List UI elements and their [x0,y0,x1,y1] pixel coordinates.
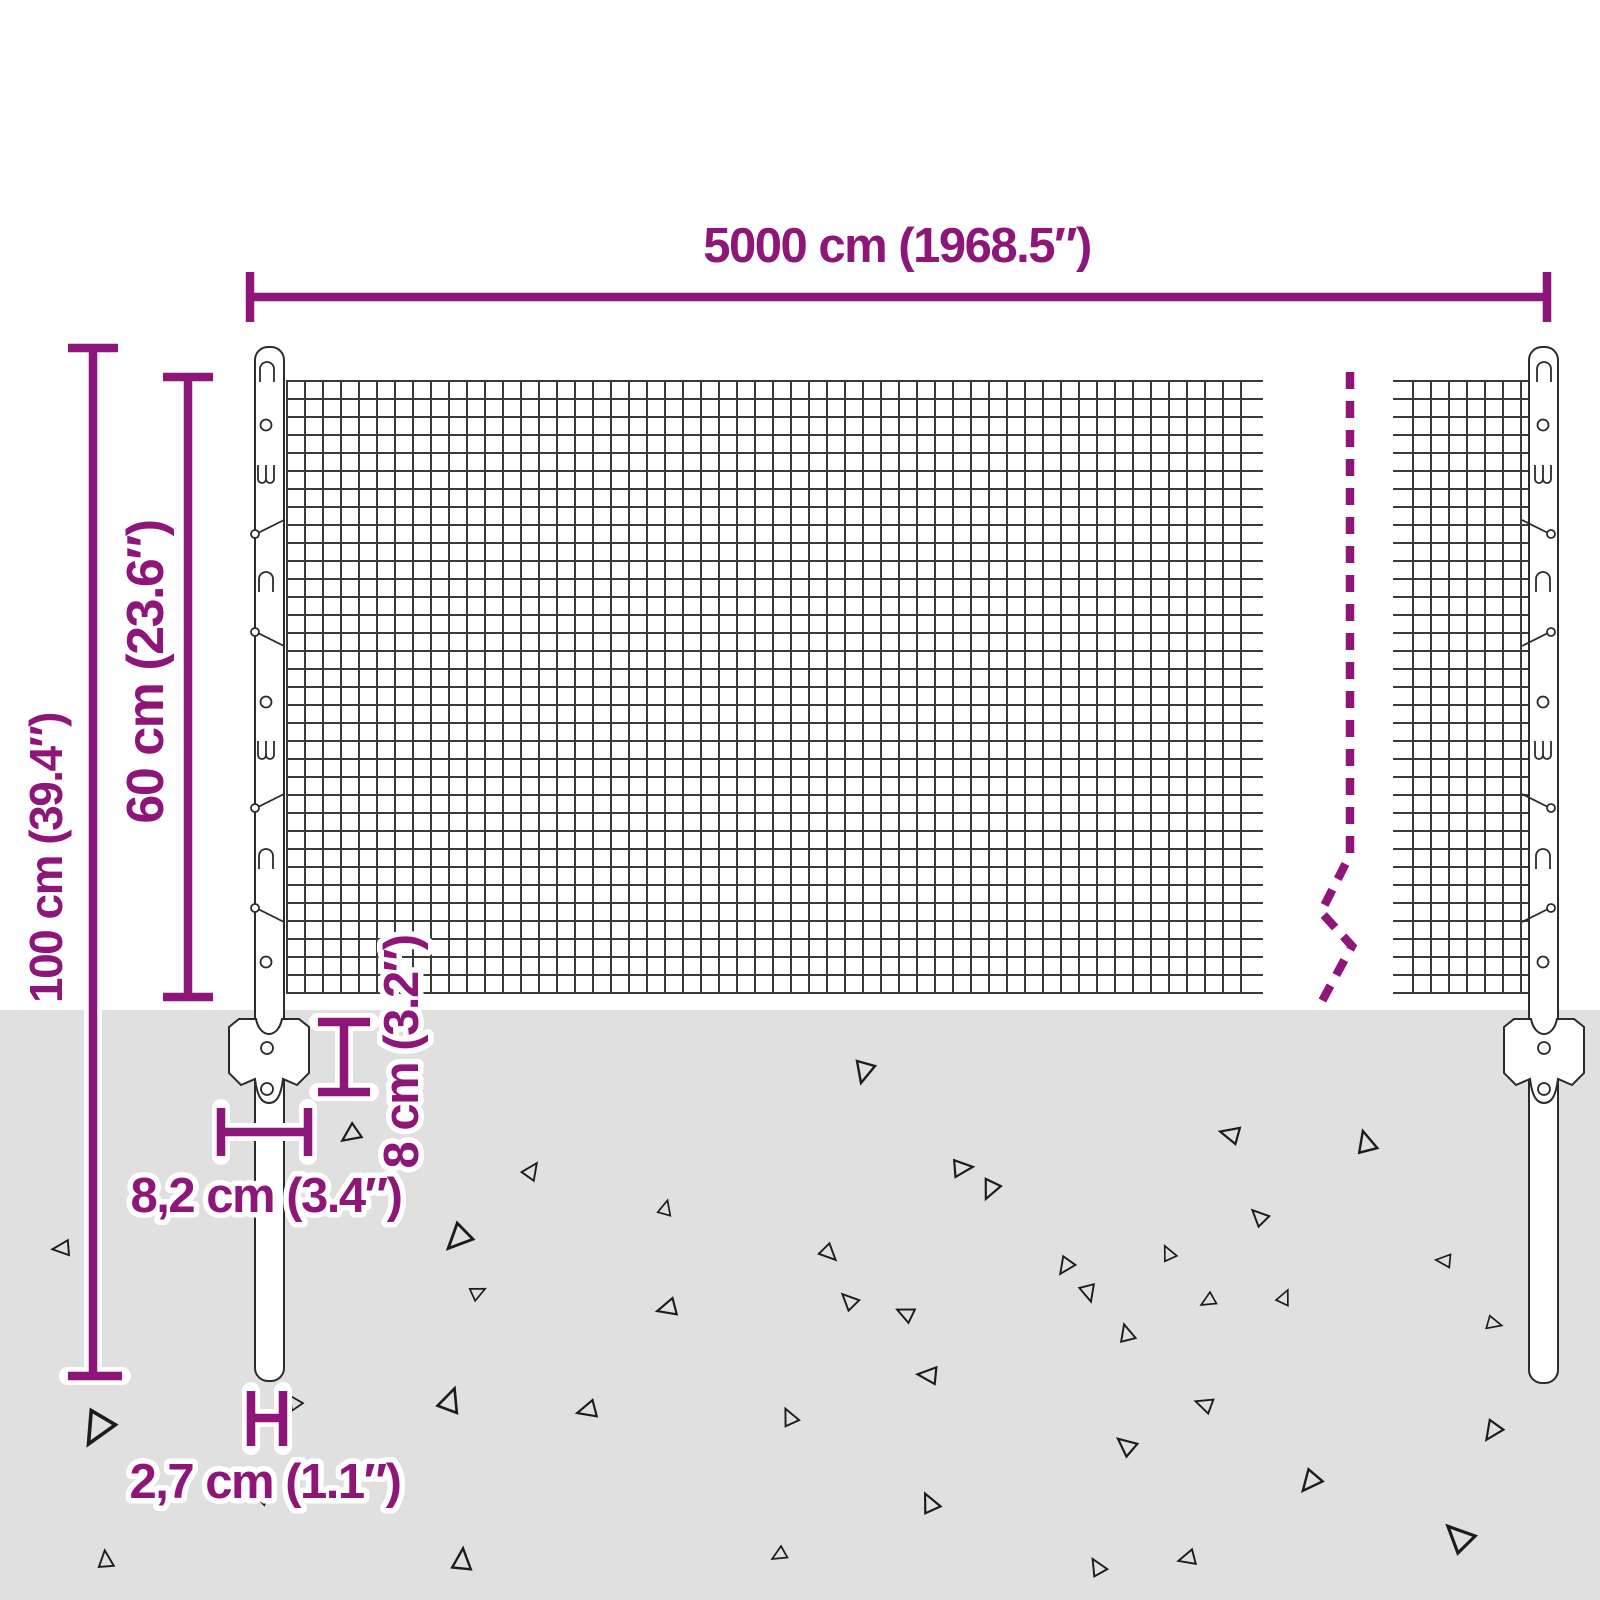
dim-fence-length [250,272,1547,322]
dim-post-diameter [251,1391,283,1446]
label-plate-width: 8,2 cm (3.4″) [131,1169,402,1223]
post-hole-icon [261,697,272,708]
post-hole-icon [1538,420,1549,431]
fence-dimension-diagram: 5000 cm (1968.5″) 100 cm (39.4″) 60 cm (… [0,0,1600,1600]
break-dashed-line [1321,372,1352,1003]
label-post-height: 100 cm (39.4″) [20,713,72,1003]
diagram-overlay: 5000 cm (1968.5″) 100 cm (39.4″) 60 cm (… [0,0,1600,1600]
label-fence-length: 5000 cm (1968.5″) [703,219,1091,273]
dim-plate-height [318,1022,370,1092]
dim-post-height [68,348,122,1376]
post-hole-icon [1538,957,1549,968]
label-mesh-height: 60 cm (23.6″) [117,520,175,823]
post-hole-icon [1538,697,1549,708]
label-post-diameter: 2,7 cm (1.1″) [130,1455,401,1509]
post-hole-icon [261,957,272,968]
label-plate-height: 8 cm (3.2″) [375,935,429,1168]
post-hole-icon [261,420,272,431]
right-post [1529,347,1558,1383]
